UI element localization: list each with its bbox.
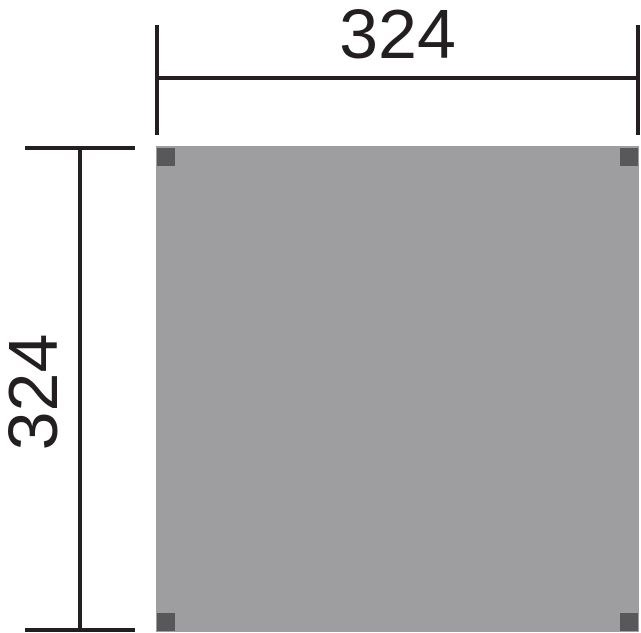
corner-post-top-right <box>620 148 638 166</box>
corner-post-bottom-right <box>620 613 638 631</box>
corner-post-top-left <box>157 148 175 166</box>
height-dimension-tick-bottom <box>25 628 135 632</box>
height-dimension-tick-top <box>25 146 135 150</box>
width-dimension-line <box>156 76 639 80</box>
floor-plan-diagram: 324 324 <box>0 0 641 633</box>
corner-post-bottom-left <box>157 613 175 631</box>
plan-area <box>156 146 639 632</box>
height-dimension-line <box>78 147 82 631</box>
height-dimension-label: 324 <box>0 327 68 457</box>
width-dimension-tick-right <box>636 25 640 135</box>
width-dimension-label: 324 <box>156 0 639 69</box>
width-dimension-tick-left <box>155 25 159 135</box>
